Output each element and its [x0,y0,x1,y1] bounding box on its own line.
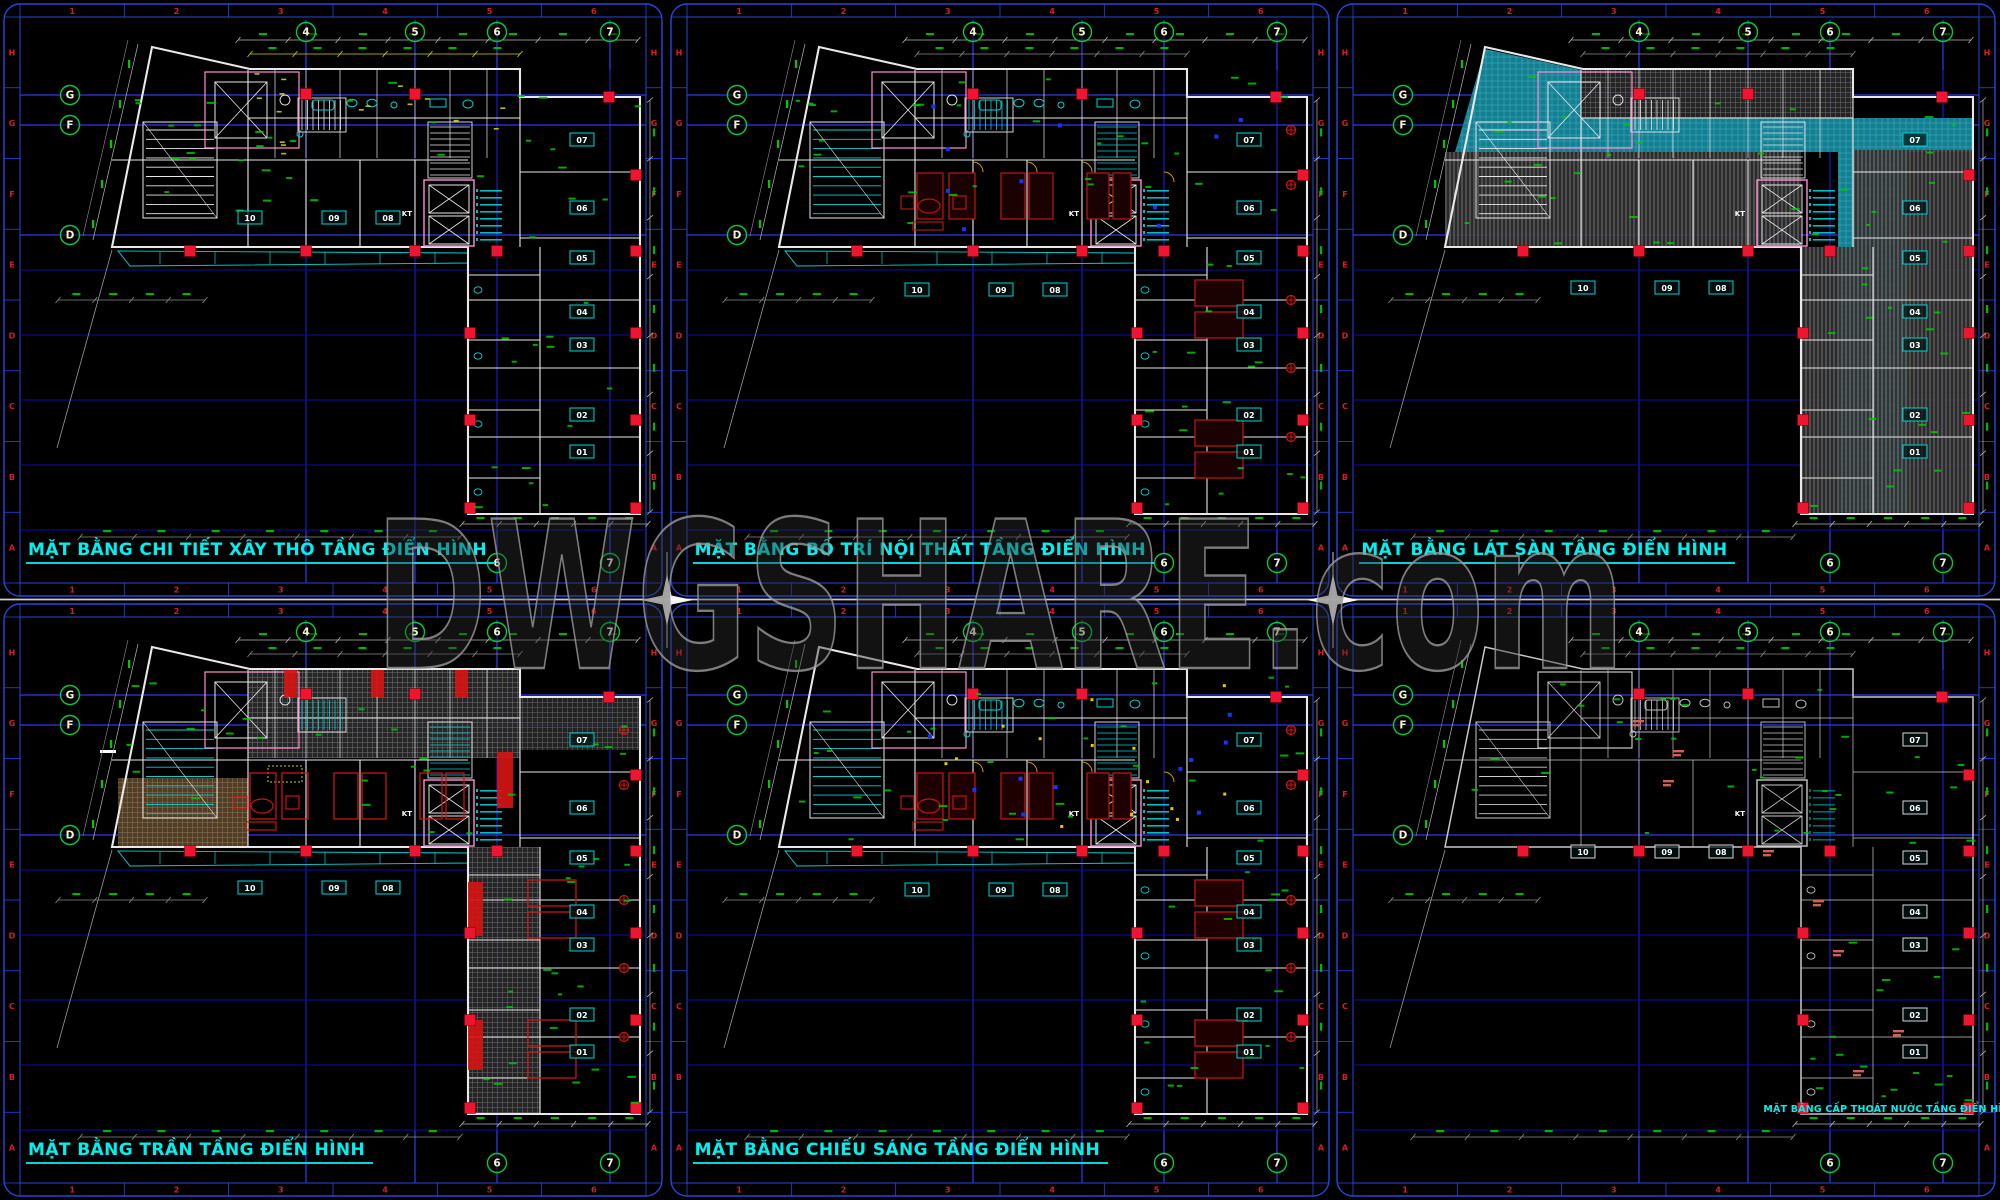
svg-text:2: 2 [840,585,846,594]
svg-text:6: 6 [1258,7,1264,16]
panel-tran: 112233445566HHGGFFEEDDCCBBAAKT1009080706… [0,600,667,1200]
svg-text:01: 01 [1910,448,1921,457]
svg-text:H: H [1317,48,1324,57]
svg-text:03: 03 [1243,941,1254,950]
svg-text:G: G [732,690,741,702]
svg-text:05: 05 [1243,254,1254,263]
svg-text:7: 7 [606,27,613,39]
svg-text:D: D [732,830,741,842]
svg-text:3: 3 [1611,607,1617,616]
svg-text:4: 4 [1049,1186,1055,1195]
svg-text:E: E [1343,261,1348,270]
svg-text:3: 3 [1611,585,1617,594]
svg-text:3: 3 [278,607,284,616]
svg-text:3: 3 [278,1186,284,1195]
svg-text:4: 4 [1716,7,1722,16]
svg-text:5: 5 [1820,1186,1826,1195]
svg-text:D: D [1342,331,1349,340]
svg-text:A: A [1984,1144,1991,1153]
svg-text:E: E [1318,261,1323,270]
svg-text:D: D [66,830,75,842]
svg-text:A: A [1984,544,1991,553]
svg-text:1: 1 [736,1186,742,1195]
svg-text:KT: KT [1735,810,1745,818]
svg-text:2: 2 [1507,7,1513,16]
svg-text:E: E [676,861,681,870]
svg-text:6: 6 [1827,1158,1834,1170]
svg-text:A: A [9,1144,16,1153]
svg-text:5: 5 [1153,1186,1159,1195]
svg-text:2: 2 [1507,1186,1513,1195]
svg-text:6: 6 [493,627,500,639]
svg-text:B: B [651,1073,657,1082]
svg-text:B: B [676,473,682,482]
svg-text:G: G [651,719,658,728]
svg-text:5: 5 [1745,27,1752,39]
svg-text:E: E [651,261,656,270]
svg-text:B: B [1342,1073,1348,1082]
svg-text:08: 08 [1049,886,1061,895]
svg-text:H: H [675,648,682,657]
svg-text:1: 1 [736,585,742,594]
svg-text:F: F [733,120,740,132]
dimension-lines [55,33,655,540]
svg-text:03: 03 [1910,341,1921,350]
svg-text:10: 10 [911,886,923,895]
svg-text:H: H [1984,48,1991,57]
svg-text:6: 6 [1258,607,1264,616]
svg-text:2: 2 [1507,607,1513,616]
svg-text:KT: KT [1068,210,1078,218]
svg-text:4: 4 [1636,627,1643,639]
svg-text:6: 6 [1924,7,1930,16]
svg-text:D: D [651,931,658,940]
svg-text:E: E [651,861,656,870]
svg-text:E: E [9,861,14,870]
svg-text:G: G [651,119,658,128]
svg-text:1: 1 [1403,585,1409,594]
svg-text:4: 4 [969,627,976,639]
svg-text:6: 6 [1924,1186,1930,1195]
panel-title-chieu-sang: MẶT BẰNG CHIẾU SÁNG TẦNG ĐIỂN HÌNH [693,1140,1108,1164]
svg-text:06: 06 [1910,204,1922,213]
svg-text:1: 1 [736,607,742,616]
svg-text:4: 4 [302,27,309,39]
svg-text:6: 6 [1827,558,1834,570]
svg-text:10: 10 [1578,284,1590,293]
svg-text:04: 04 [576,908,588,917]
svg-text:1: 1 [69,7,75,16]
svg-text:5: 5 [487,1186,493,1195]
svg-text:10: 10 [244,884,256,893]
svg-text:5: 5 [1153,607,1159,616]
room-labels: 10090807060504030201 [238,133,594,458]
svg-text:6: 6 [1160,627,1167,639]
panel-title-tran: MẶT BẰNG TRẦN TẦNG ĐIỂN HÌNH [26,1140,373,1164]
svg-text:C: C [676,402,682,411]
svg-text:2: 2 [840,7,846,16]
svg-text:D: D [675,331,682,340]
svg-text:6: 6 [1827,627,1834,639]
svg-text:1: 1 [69,607,75,616]
svg-text:4: 4 [969,27,976,39]
svg-text:6: 6 [591,1186,597,1195]
svg-text:07: 07 [1910,736,1921,745]
svg-text:07: 07 [1243,136,1254,145]
svg-text:4: 4 [382,7,388,16]
svg-text:D: D [9,331,16,340]
svg-text:5: 5 [1078,27,1085,39]
svg-text:G: G [1984,119,1991,128]
cad-drawing-collage: 112233445566HHGGFFEEDDCCBBAAKT1009080706… [0,0,2000,1200]
svg-text:7: 7 [1273,1158,1280,1170]
svg-text:02: 02 [1910,1011,1921,1020]
svg-text:03: 03 [1243,341,1254,350]
svg-text:7: 7 [606,1158,613,1170]
svg-text:2: 2 [174,585,180,594]
svg-text:10: 10 [244,214,256,223]
svg-text:G: G [9,119,16,128]
svg-text:E: E [1985,261,1990,270]
svg-text:G: G [1342,119,1349,128]
svg-text:C: C [1342,402,1348,411]
floor-plan-xay-tho: 112233445566HHGGFFEEDDCCBBAAKT1009080706… [0,0,667,600]
svg-text:KT: KT [1735,210,1745,218]
svg-text:G: G [9,719,16,728]
svg-text:10: 10 [911,286,923,295]
svg-text:F: F [9,790,14,799]
svg-text:3: 3 [278,7,284,16]
svg-text:3: 3 [278,585,284,594]
svg-text:1: 1 [1403,1186,1409,1195]
svg-text:4: 4 [1716,1186,1722,1195]
building-plan: KT [1390,647,1973,1114]
svg-text:05: 05 [576,254,587,263]
svg-text:08: 08 [1716,284,1728,293]
svg-text:5: 5 [1820,7,1826,16]
floor-plan-chieu-sang: 112233445566HHGGFFEEDDCCBBAAKT1009080706… [667,600,1334,1200]
svg-text:G: G [1399,90,1408,102]
svg-text:4: 4 [1049,585,1055,594]
svg-text:D: D [1399,830,1408,842]
svg-text:A: A [9,544,16,553]
svg-text:6: 6 [1258,1186,1264,1195]
svg-text:7: 7 [1940,558,1947,570]
svg-text:6: 6 [1258,585,1264,594]
svg-text:5: 5 [487,607,493,616]
svg-text:D: D [1317,931,1324,940]
building-plan: KT [724,47,1307,514]
svg-text:D: D [1317,331,1324,340]
micro-annotations [135,73,641,508]
svg-text:07: 07 [576,736,587,745]
svg-text:03: 03 [576,941,587,950]
svg-text:6: 6 [591,607,597,616]
panel-noi-that: 112233445566HHGGFFEEDDCCBBAAKT1009080706… [667,0,1334,600]
svg-text:A: A [651,1144,658,1153]
svg-text:10: 10 [1578,848,1590,857]
dimension-lines [1389,633,1989,1140]
svg-text:H: H [651,48,658,57]
svg-text:6: 6 [1827,27,1834,39]
svg-text:D: D [66,230,75,242]
svg-text:H: H [1342,648,1349,657]
svg-text:07: 07 [576,136,587,145]
svg-text:2: 2 [840,607,846,616]
svg-text:02: 02 [1243,411,1254,420]
svg-text:5: 5 [1153,7,1159,16]
building-plan: KT [57,47,640,514]
svg-text:A: A [1318,544,1325,553]
svg-text:A: A [651,544,658,553]
svg-text:01: 01 [576,448,587,457]
svg-text:C: C [1318,1002,1324,1011]
svg-text:06: 06 [1243,204,1255,213]
building-plan: KT [57,647,640,1114]
svg-text:5: 5 [1820,607,1826,616]
svg-text:A: A [1342,544,1349,553]
svg-text:03: 03 [1910,941,1921,950]
svg-text:7: 7 [1940,27,1947,39]
svg-text:5: 5 [1820,585,1826,594]
svg-text:D: D [1984,931,1991,940]
svg-text:6: 6 [591,7,597,16]
svg-text:07: 07 [1243,736,1254,745]
svg-text:06: 06 [576,804,588,813]
grid-lines [1353,620,1979,1183]
panel-lat-san: 112233445566HHGGFFEEDDCCBBAAKT1009080706… [1333,0,2000,600]
svg-text:01: 01 [1910,1048,1921,1057]
svg-text:5: 5 [1153,585,1159,594]
svg-text:4: 4 [302,627,309,639]
svg-text:08: 08 [1716,848,1728,857]
svg-text:05: 05 [1910,254,1921,263]
svg-text:04: 04 [1243,308,1255,317]
svg-text:04: 04 [576,308,588,317]
svg-text:2: 2 [174,607,180,616]
svg-text:4: 4 [382,585,388,594]
svg-text:3: 3 [1611,7,1617,16]
svg-text:7: 7 [1273,27,1280,39]
svg-text:E: E [1318,861,1323,870]
micro-annotations [1472,683,1976,1101]
svg-text:F: F [676,790,681,799]
svg-text:6: 6 [1924,607,1930,616]
svg-text:01: 01 [1243,448,1254,457]
panel-xay-tho: 112233445566HHGGFFEEDDCCBBAAKT1009080706… [0,0,667,600]
svg-text:C: C [1342,1002,1348,1011]
svg-text:C: C [1984,402,1990,411]
svg-text:B: B [676,1073,682,1082]
svg-text:08: 08 [1049,286,1061,295]
svg-text:H: H [9,48,16,57]
grid-lines [20,20,646,583]
svg-text:H: H [9,648,16,657]
floor-plan-tran: 112233445566HHGGFFEEDDCCBBAAKT1009080706… [0,600,667,1200]
svg-text:G: G [675,719,682,728]
svg-text:02: 02 [1243,1011,1254,1020]
svg-text:06: 06 [1910,804,1922,813]
panel-title-noi-that: MẶT BẰNG BỐ TRÍ NỘI THẤT TẦNG ĐIỂN HÌNH [693,540,1154,564]
svg-text:3: 3 [945,1186,951,1195]
svg-text:4: 4 [382,607,388,616]
svg-text:B: B [9,473,15,482]
svg-text:H: H [1984,648,1991,657]
svg-text:7: 7 [606,627,613,639]
svg-text:F: F [1343,790,1348,799]
svg-text:6: 6 [493,27,500,39]
svg-text:07: 07 [1910,136,1921,145]
svg-text:C: C [651,1002,657,1011]
svg-text:09: 09 [328,884,340,893]
svg-text:B: B [9,1073,15,1082]
svg-text:B: B [1318,473,1324,482]
svg-text:1: 1 [69,1186,75,1195]
svg-text:05: 05 [576,854,587,863]
svg-text:04: 04 [1243,908,1255,917]
svg-text:6: 6 [591,585,597,594]
svg-text:G: G [1984,719,1991,728]
svg-text:1: 1 [69,585,75,594]
svg-text:G: G [732,90,741,102]
svg-text:D: D [1342,931,1349,940]
svg-text:F: F [66,720,73,732]
svg-text:6: 6 [1160,1158,1167,1170]
svg-text:4: 4 [1049,7,1055,16]
panel-title-xay-tho: MẶT BẰNG CHI TIẾT XÂY THÔ TẦNG ĐIỂN HÌNH [26,540,495,564]
svg-text:C: C [1984,1002,1990,1011]
svg-text:7: 7 [1940,627,1947,639]
svg-text:5: 5 [411,627,418,639]
svg-text:2: 2 [174,7,180,16]
svg-text:09: 09 [328,214,340,223]
svg-text:03: 03 [576,341,587,350]
svg-text:H: H [1342,48,1349,57]
room-labels: 10090807060504030201 [1571,733,1927,1058]
svg-text:G: G [1399,690,1408,702]
svg-text:H: H [1317,648,1324,657]
svg-text:4: 4 [1716,585,1722,594]
svg-text:05: 05 [1243,854,1254,863]
svg-text:H: H [675,48,682,57]
svg-text:3: 3 [1611,1186,1617,1195]
svg-text:E: E [676,261,681,270]
svg-text:E: E [9,261,14,270]
svg-text:B: B [1342,473,1348,482]
svg-text:6: 6 [1924,585,1930,594]
svg-text:7: 7 [1273,627,1280,639]
svg-text:4: 4 [1049,607,1055,616]
svg-text:G: G [1317,719,1324,728]
svg-text:C: C [9,402,15,411]
svg-text:7: 7 [1940,1158,1947,1170]
svg-text:08: 08 [382,884,394,893]
svg-text:04: 04 [1910,308,1922,317]
svg-text:1: 1 [736,7,742,16]
svg-text:1: 1 [1403,607,1409,616]
svg-text:3: 3 [945,7,951,16]
floor-plan-noi-that: 112233445566HHGGFFEEDDCCBBAAKT1009080706… [667,0,1334,600]
svg-text:4: 4 [382,1186,388,1195]
svg-text:02: 02 [576,411,587,420]
svg-text:B: B [1984,1073,1990,1082]
svg-text:D: D [1984,331,1991,340]
svg-text:2: 2 [174,1186,180,1195]
svg-text:7: 7 [606,558,613,570]
svg-text:7: 7 [1273,558,1280,570]
svg-text:G: G [1342,719,1349,728]
svg-text:09: 09 [1662,848,1674,857]
svg-text:B: B [1984,473,1990,482]
building-plan: KT [1390,47,1973,514]
svg-text:A: A [1318,1144,1325,1153]
svg-text:F: F [66,120,73,132]
svg-text:5: 5 [1745,627,1752,639]
svg-text:F: F [1400,120,1407,132]
svg-text:D: D [675,931,682,940]
building-plan: KT [724,647,1307,1114]
svg-text:G: G [1317,119,1324,128]
svg-text:C: C [676,1002,682,1011]
svg-text:B: B [1318,1073,1324,1082]
svg-text:D: D [651,331,658,340]
svg-text:C: C [651,402,657,411]
svg-text:2: 2 [840,1186,846,1195]
svg-text:09: 09 [995,886,1007,895]
svg-text:G: G [66,690,75,702]
svg-text:D: D [9,931,16,940]
svg-text:6: 6 [1160,27,1167,39]
svg-text:G: G [675,119,682,128]
svg-text:5: 5 [411,27,418,39]
svg-text:E: E [1985,861,1990,870]
svg-text:01: 01 [1243,1048,1254,1057]
svg-text:1: 1 [1403,7,1409,16]
svg-text:3: 3 [945,607,951,616]
svg-text:KT: KT [402,210,412,218]
svg-text:A: A [1342,1144,1349,1153]
svg-text:04: 04 [1910,908,1922,917]
svg-text:4: 4 [1636,27,1643,39]
svg-text:06: 06 [1243,804,1255,813]
svg-text:D: D [1399,230,1408,242]
svg-text:A: A [676,544,683,553]
svg-text:09: 09 [995,286,1007,295]
svg-text:G: G [66,90,75,102]
svg-text:F: F [9,190,14,199]
panel-cap-thoat-nuoc: 112233445566HHGGFFEEDDCCBBAAKT1009080706… [1333,600,2000,1200]
svg-text:02: 02 [1910,411,1921,420]
svg-text:E: E [1343,861,1348,870]
floor-plan-lat-san: 112233445566HHGGFFEEDDCCBBAAKT1009080706… [1333,0,2000,600]
svg-text:F: F [676,190,681,199]
svg-text:05: 05 [1910,854,1921,863]
svg-text:6: 6 [493,1158,500,1170]
svg-text:H: H [651,648,658,657]
svg-text:F: F [1343,190,1348,199]
svg-text:08: 08 [382,214,394,223]
svg-text:01: 01 [576,1048,587,1057]
panel-chieu-sang: 112233445566HHGGFFEEDDCCBBAAKT1009080706… [667,600,1334,1200]
svg-text:5: 5 [487,585,493,594]
svg-text:2: 2 [1507,585,1513,594]
svg-text:A: A [676,1144,683,1153]
svg-text:C: C [1318,402,1324,411]
svg-text:C: C [9,1002,15,1011]
svg-text:5: 5 [1078,627,1085,639]
svg-text:02: 02 [576,1011,587,1020]
panel-title-cap-thoat-nuoc: MẶT BẰNG CẤP THOÁT NƯỚC TẦNG ĐIỂN HÌNH [1763,1104,2000,1115]
